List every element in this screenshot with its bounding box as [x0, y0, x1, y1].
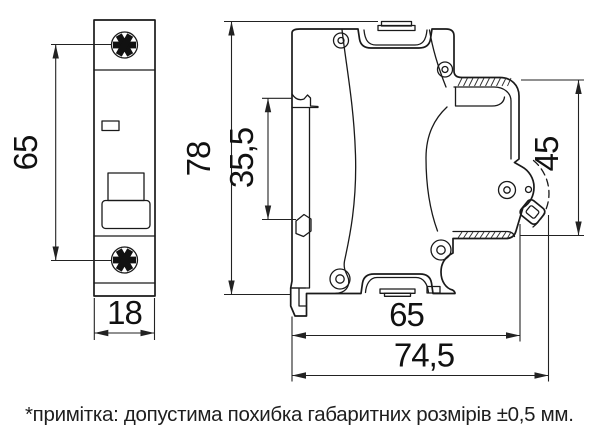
dim-height: 78: [180, 22, 378, 295]
top-terminal: [364, 22, 427, 46]
front-view: 65 18: [7, 20, 155, 340]
dim-width: 18: [94, 294, 154, 340]
dim-depth-total-label: 74,5: [394, 337, 454, 374]
grip-ribs-top: [458, 78, 511, 86]
screw-bottom-icon: [112, 247, 138, 273]
front-panel-edge-bottom: [453, 232, 515, 239]
dim-front-panel-label: 45: [528, 137, 565, 172]
dim-rail-claw-span-label: 35,5: [223, 128, 260, 188]
screw-top-icon: [112, 32, 138, 58]
din-latch: [296, 215, 311, 237]
dim-mounting-holes: 65: [7, 45, 112, 261]
toggle-switch: [102, 173, 150, 229]
tolerance-note: *примітка: допустима похибка габаритних …: [25, 403, 574, 426]
rivets: [330, 33, 532, 289]
bottom-terminal: [366, 278, 441, 297]
label-window: [102, 121, 119, 131]
din-clip-lever: [518, 198, 546, 226]
dim-rail-claw-span: 35,5: [223, 98, 296, 219]
technical-drawing-canvas: 65 18: [0, 0, 600, 439]
front-panel-edge-top: [454, 78, 511, 159]
din-rail-channel: [291, 94, 318, 306]
side-view: 78 35,5 45 65 74,5: [180, 22, 584, 382]
dim-front-panel: 45: [520, 80, 584, 236]
dim-width-label: 18: [107, 294, 142, 331]
housing-split-lines: [336, 30, 447, 294]
din-foot-detail: [291, 288, 306, 306]
front-panel-seams: [94, 70, 155, 283]
dim-mounting-holes-label: 65: [7, 136, 44, 171]
breaker-side-body: [291, 29, 534, 316]
dim-height-label: 78: [180, 142, 217, 177]
pivot-pin: [526, 187, 532, 193]
drawing-svg: 65 18: [0, 0, 600, 439]
grip-ribs-bottom: [458, 232, 511, 238]
dim-depth-body-label: 65: [389, 296, 424, 333]
